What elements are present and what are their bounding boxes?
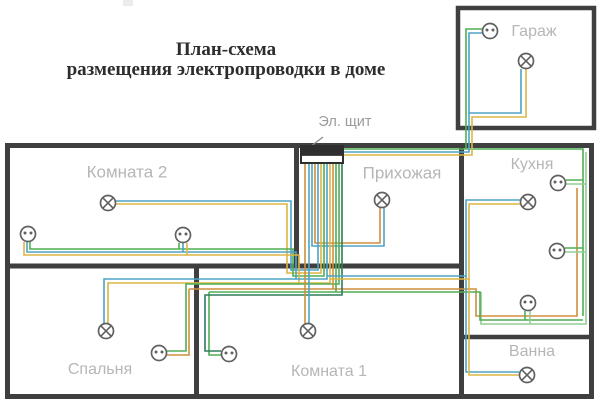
socket-icon-room2-right-pin: [185, 233, 188, 236]
wire-yellow: [24, 242, 299, 283]
wire-green: [30, 163, 324, 276]
wire-teal: [469, 69, 521, 113]
socket-icon-kitchen-bottom-pin: [530, 301, 533, 304]
socket-icon-room1-pin: [231, 352, 234, 355]
socket-icon-kitchen-top: [551, 176, 566, 191]
socket-icon-kitchen-top-pin: [560, 181, 563, 184]
socket-icon-kitchen-mid-pin: [559, 249, 562, 252]
wire-teal: [104, 163, 327, 324]
room-label-room2: Комната 2: [87, 162, 168, 181]
socket-icon-bedroom-pin: [155, 351, 158, 354]
socket-icon-kitchen-mid: [550, 244, 565, 259]
wire-green: [167, 163, 339, 351]
socket-icon-kitchen-bottom: [521, 296, 536, 311]
wiring-plan-diagram: План-схема размещения электропроводки в …: [0, 0, 600, 411]
wire-teal: [343, 33, 482, 152]
socket-icon-kitchen-top-pin: [554, 181, 557, 184]
room-label-kitchen: Кухня: [511, 156, 554, 173]
socket-icon-bedroom: [152, 346, 167, 361]
socket-icon-bedroom-pin: [161, 351, 164, 354]
socket-icon-kitchen-mid-pin: [553, 249, 556, 252]
socket-icon-room2-right-pin: [179, 233, 182, 236]
room-label-hallway: Прихожая: [363, 163, 442, 182]
room-label-bedroom: Спальня: [68, 361, 132, 378]
socket-icon-garage-pin: [492, 29, 495, 32]
socket-icon-garage-pin: [486, 29, 489, 32]
wire-teal: [27, 242, 296, 279]
socket-icon-garage: [483, 24, 498, 39]
wire-green: [209, 292, 221, 355]
socket-icon-room1-pin: [225, 352, 228, 355]
socket-icon-room2-right: [176, 228, 191, 243]
room-label-room1: Комната 1: [291, 363, 367, 380]
socket-icon-kitchen-bottom-pin: [524, 301, 527, 304]
room-label-bath: Ванна: [509, 343, 555, 360]
socket-icon-room2-left-pin: [30, 232, 33, 235]
floor-plan-svg: ГаражКомната 2ПрихожаяКухняЭл. щитСпальн…: [0, 0, 600, 411]
electrical-panel-top: [301, 146, 343, 156]
room-label-garage: Гараж: [511, 23, 556, 40]
socket-icon-room1: [222, 347, 237, 362]
wire-yellow: [343, 69, 526, 155]
socket-icon-room2-left: [21, 227, 36, 242]
socket-icon-room2-left-pin: [24, 232, 27, 235]
panel-label: Эл. щит: [318, 114, 371, 130]
